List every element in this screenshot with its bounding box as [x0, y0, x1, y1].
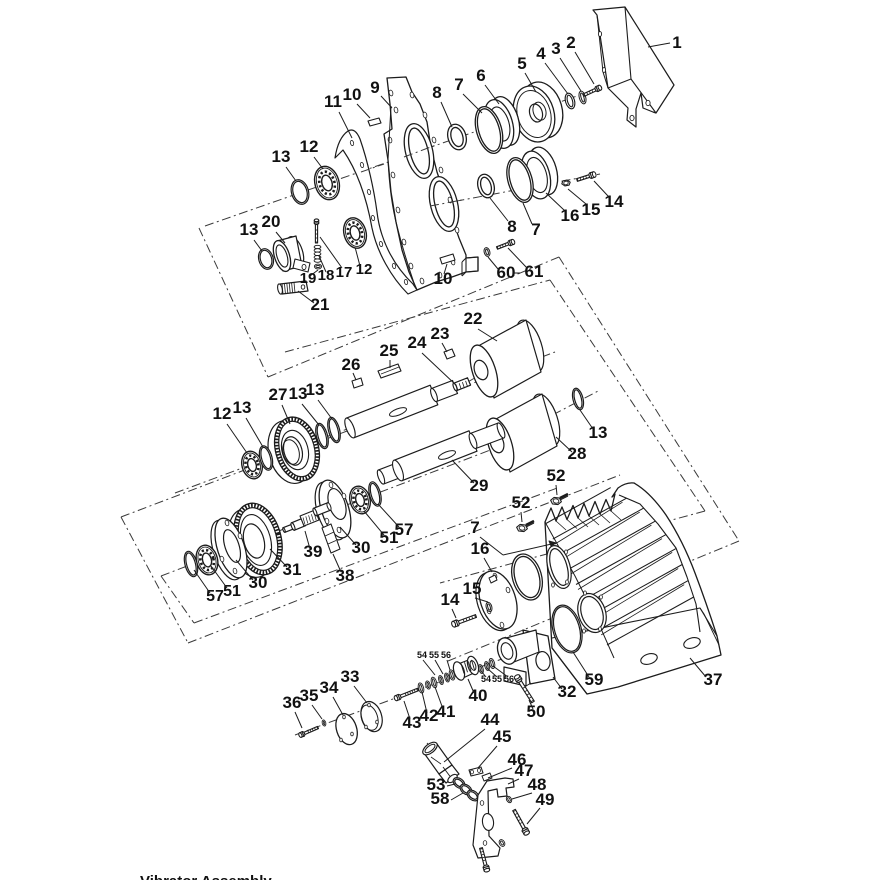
- svg-text:52: 52: [547, 466, 566, 485]
- svg-text:39: 39: [304, 542, 323, 561]
- svg-text:12: 12: [213, 404, 232, 423]
- svg-text:31: 31: [283, 560, 302, 579]
- svg-text:Vibrator Assembly: Vibrator Assembly: [140, 873, 272, 880]
- svg-text:55: 55: [492, 674, 502, 684]
- svg-text:11: 11: [324, 92, 342, 111]
- svg-text:1: 1: [672, 33, 681, 52]
- svg-text:13: 13: [306, 380, 325, 399]
- svg-text:33: 33: [341, 667, 360, 686]
- svg-text:8: 8: [432, 83, 441, 102]
- svg-text:10: 10: [434, 269, 453, 288]
- svg-text:55: 55: [429, 650, 439, 660]
- svg-text:5: 5: [517, 54, 526, 73]
- svg-text:7: 7: [454, 75, 463, 94]
- svg-text:30: 30: [352, 538, 371, 557]
- svg-text:2: 2: [566, 33, 575, 52]
- svg-text:57: 57: [395, 520, 414, 539]
- svg-text:32: 32: [558, 682, 577, 701]
- svg-text:22: 22: [464, 309, 483, 328]
- svg-text:61: 61: [525, 262, 544, 281]
- svg-text:30: 30: [249, 573, 268, 592]
- svg-text:14: 14: [441, 590, 460, 609]
- svg-text:4: 4: [536, 44, 546, 63]
- svg-text:35: 35: [300, 686, 319, 705]
- svg-text:15: 15: [463, 579, 482, 598]
- svg-text:23: 23: [431, 324, 450, 343]
- svg-text:3: 3: [551, 39, 560, 58]
- svg-text:17: 17: [336, 264, 353, 281]
- svg-text:54: 54: [417, 650, 427, 660]
- svg-text:6: 6: [476, 66, 485, 85]
- svg-text:56: 56: [441, 650, 451, 660]
- svg-text:21: 21: [311, 295, 330, 314]
- svg-text:9: 9: [370, 78, 379, 97]
- svg-text:59: 59: [585, 670, 604, 689]
- svg-text:13: 13: [240, 220, 259, 239]
- svg-text:50: 50: [527, 702, 546, 721]
- svg-text:27: 27: [269, 385, 288, 404]
- svg-text:7: 7: [470, 518, 479, 537]
- svg-text:24: 24: [408, 333, 427, 352]
- svg-text:40: 40: [469, 686, 488, 705]
- svg-text:34: 34: [320, 678, 339, 697]
- svg-text:29: 29: [470, 476, 489, 495]
- svg-text:26: 26: [342, 355, 361, 374]
- svg-text:20: 20: [262, 212, 281, 231]
- svg-text:7: 7: [531, 220, 540, 239]
- svg-text:54: 54: [481, 674, 491, 684]
- svg-text:37: 37: [704, 670, 723, 689]
- svg-text:8: 8: [507, 217, 516, 236]
- svg-text:38: 38: [336, 566, 355, 585]
- svg-text:12: 12: [300, 137, 319, 156]
- svg-text:60: 60: [497, 263, 516, 282]
- svg-text:45: 45: [493, 727, 512, 746]
- svg-text:18: 18: [318, 267, 335, 284]
- svg-text:16: 16: [471, 539, 490, 558]
- svg-text:41: 41: [437, 702, 456, 721]
- svg-text:13: 13: [272, 147, 291, 166]
- svg-text:52: 52: [512, 493, 531, 512]
- svg-text:49: 49: [536, 790, 555, 809]
- svg-text:12: 12: [356, 261, 373, 278]
- svg-text:28: 28: [568, 444, 587, 463]
- svg-text:25: 25: [380, 341, 399, 360]
- svg-text:58: 58: [431, 789, 450, 808]
- svg-text:13: 13: [233, 398, 252, 417]
- svg-text:10: 10: [343, 85, 362, 104]
- svg-text:36: 36: [283, 693, 302, 712]
